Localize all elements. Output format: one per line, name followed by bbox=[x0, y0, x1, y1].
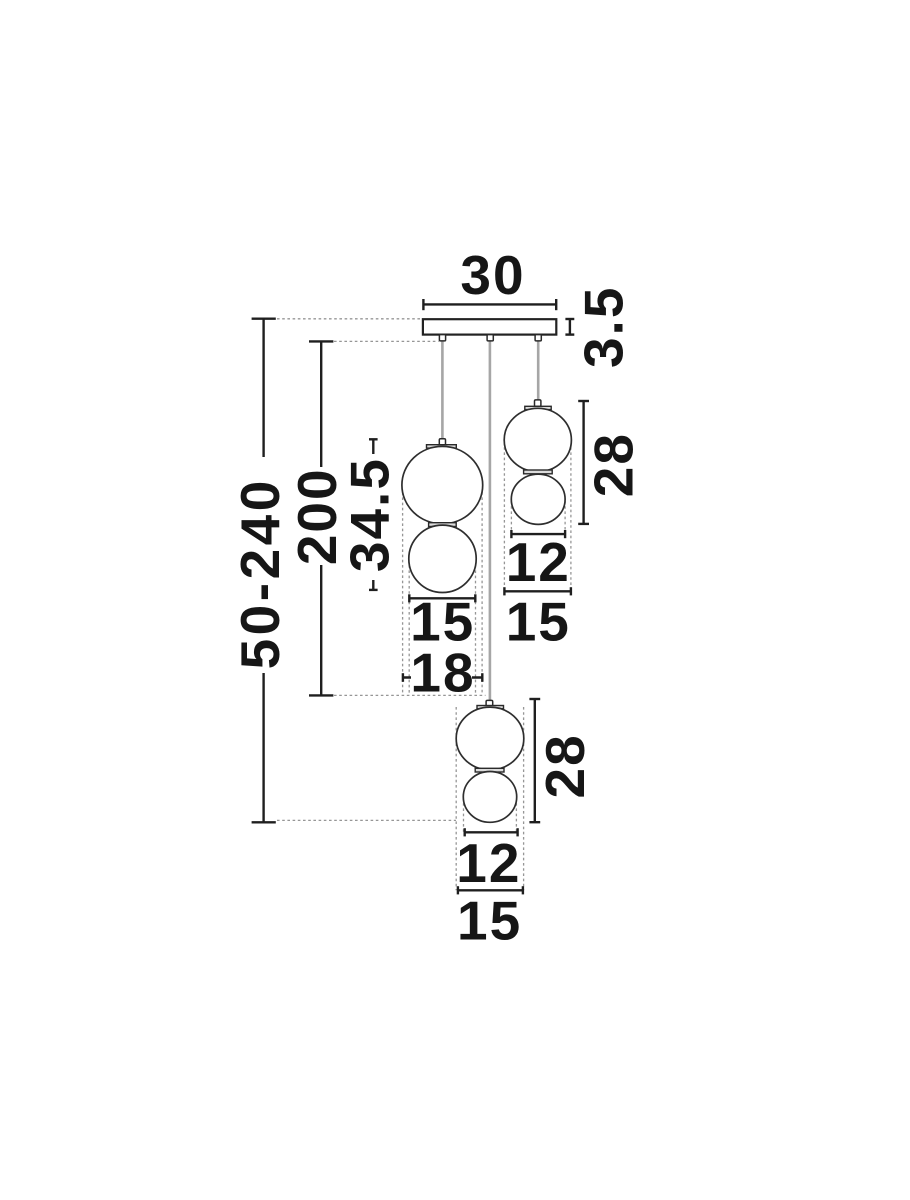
svg-text:28: 28 bbox=[534, 733, 596, 798]
svg-text:15: 15 bbox=[506, 591, 571, 653]
svg-text:12: 12 bbox=[456, 832, 521, 894]
svg-text:30: 30 bbox=[460, 244, 525, 306]
svg-text:15: 15 bbox=[457, 890, 522, 952]
svg-text:28: 28 bbox=[583, 432, 645, 497]
svg-text:12: 12 bbox=[506, 531, 571, 593]
svg-text:18: 18 bbox=[410, 641, 475, 703]
svg-text:50-240: 50-240 bbox=[229, 477, 291, 669]
svg-text:3.5: 3.5 bbox=[573, 286, 635, 368]
svg-text:34.5: 34.5 bbox=[339, 457, 401, 572]
